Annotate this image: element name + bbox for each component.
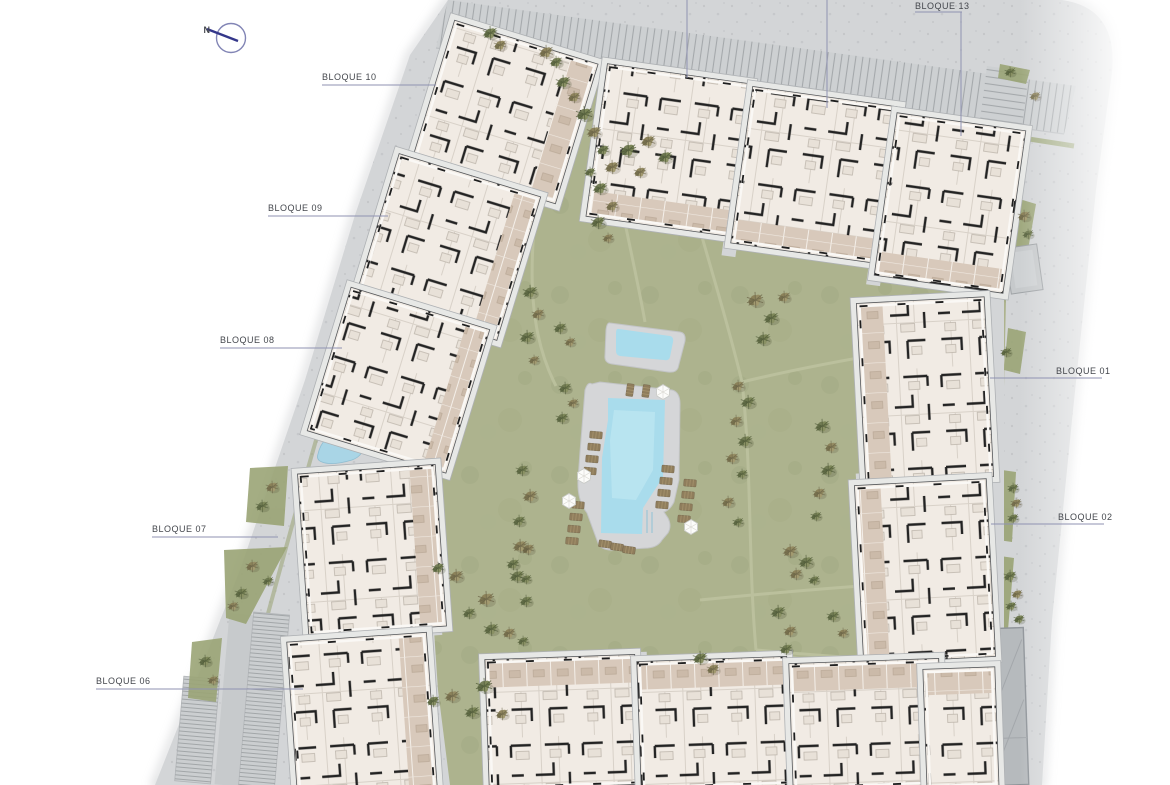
umbrella-icon	[563, 494, 576, 509]
sun-lounger	[585, 455, 598, 463]
building-bloque-01	[850, 290, 1000, 489]
sun-lounger	[587, 443, 600, 451]
building-bloque-06	[280, 626, 443, 785]
block-label: BLOQUE 08	[220, 335, 275, 345]
sun-lounger	[655, 501, 668, 509]
block-label: BLOQUE 07	[152, 524, 207, 534]
sun-lounger	[622, 546, 635, 555]
building-bloque-02	[848, 472, 1002, 669]
sun-lounger	[659, 477, 672, 485]
sun-lounger	[657, 489, 670, 497]
sun-lounger	[683, 479, 696, 487]
edge-fade	[990, 0, 1170, 785]
sun-lounger	[661, 465, 674, 473]
sun-lounger	[610, 543, 623, 552]
block-label: BLOQUE 10	[322, 72, 377, 82]
block-label: BLOQUE 09	[268, 203, 323, 213]
north-compass-icon: N	[204, 24, 246, 53]
sun-lounger	[598, 540, 611, 549]
site-plan-canvas: BLOQUE 10 BLOQUE 09 BLOQUE 08 BLOQUE 07 …	[0, 0, 1170, 785]
sun-lounger	[589, 431, 602, 439]
block-label: BLOQUE 02	[1058, 512, 1113, 522]
sun-lounger	[565, 537, 578, 545]
block-label: BLOQUE 01	[1056, 366, 1111, 376]
green-patch	[246, 466, 288, 526]
green-patch	[188, 638, 222, 702]
umbrella-icon	[685, 520, 698, 535]
umbrella-icon	[657, 385, 670, 400]
sun-lounger	[569, 513, 582, 521]
sun-lounger	[679, 503, 692, 511]
umbrella-icon	[578, 469, 591, 484]
sun-lounger	[626, 383, 635, 396]
building-bloque-07	[291, 458, 453, 642]
sun-lounger	[642, 384, 651, 397]
block-label: BLOQUE 06	[96, 676, 151, 686]
block-label: BLOQUE 13	[915, 1, 970, 11]
sun-lounger	[567, 525, 580, 533]
compass-north-label: N	[204, 25, 211, 35]
sun-lounger	[681, 491, 694, 499]
